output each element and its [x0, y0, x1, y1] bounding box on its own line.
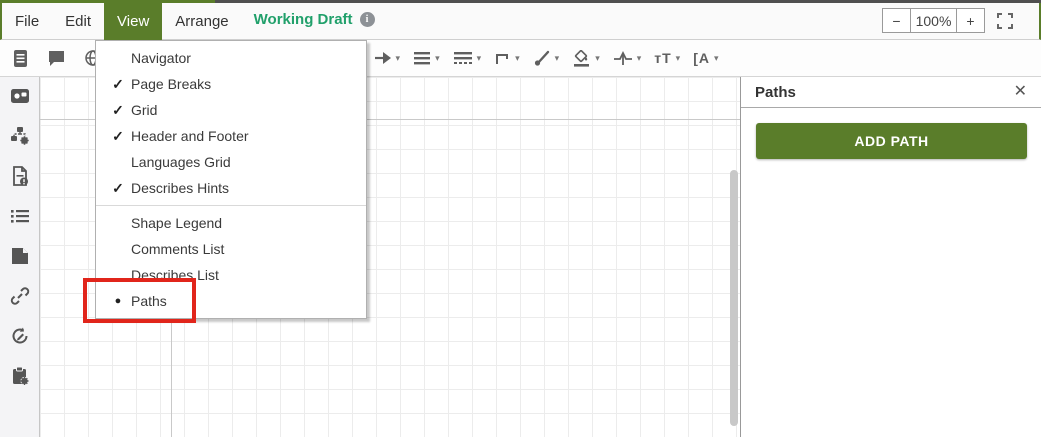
- menu-item-header-and-footer[interactable]: ✓ Header and Footer: [96, 123, 366, 149]
- text-size-glyph: тT: [654, 50, 671, 66]
- elbow-connector-icon[interactable]: ▾: [494, 50, 520, 66]
- menu-item-navigator[interactable]: Navigator: [96, 45, 366, 71]
- list-icon[interactable]: [10, 206, 30, 226]
- canvas-vertical-scrollbar[interactable]: [730, 170, 738, 426]
- arrow-connector-icon[interactable]: ▾: [374, 50, 401, 66]
- zoom-controls: − 100% +: [882, 8, 1014, 33]
- menu-arrange[interactable]: Arrange: [162, 3, 241, 40]
- caret-icon: ▾: [637, 53, 642, 64]
- caret-icon: ▾: [555, 53, 560, 64]
- caret-icon: ▾: [676, 53, 681, 64]
- close-icon[interactable]: ✕: [1014, 84, 1027, 100]
- menu-edit[interactable]: Edit: [52, 3, 104, 40]
- line-style-icon[interactable]: ▾: [413, 50, 440, 66]
- caret-icon: ▾: [477, 53, 482, 64]
- font-glyph: [A: [693, 50, 710, 66]
- menubar: File Edit View Arrange Working Draft i −…: [0, 0, 1041, 40]
- check-mark: ✓: [106, 76, 130, 93]
- waypoint-icon[interactable]: ▾: [613, 50, 642, 66]
- caret-icon: ▾: [714, 53, 719, 64]
- menu-item-label: Grid: [131, 102, 157, 118]
- view-dropdown-menu: Navigator ✓ Page Breaks ✓ Grid ✓ Header …: [95, 40, 367, 319]
- check-mark: ✓: [106, 180, 130, 197]
- document-icon[interactable]: [12, 49, 29, 68]
- document-info-icon[interactable]: [10, 166, 30, 186]
- menu-item-label: Languages Grid: [131, 154, 231, 170]
- font-icon[interactable]: [A ▾: [693, 50, 718, 66]
- comment-icon[interactable]: [47, 49, 66, 67]
- menu-item-page-breaks[interactable]: ✓ Page Breaks: [96, 71, 366, 97]
- brush-icon[interactable]: ▾: [533, 50, 560, 66]
- caret-icon: ▾: [515, 53, 520, 64]
- clipboard-settings-icon[interactable]: [10, 366, 30, 386]
- left-sidebar: [0, 77, 40, 437]
- menu-item-label: Shape Legend: [131, 215, 222, 231]
- menu-item-describes-hints[interactable]: ✓ Describes Hints: [96, 175, 366, 201]
- menu-item-label: Paths: [131, 293, 167, 309]
- menu-item-label: Comments List: [131, 241, 224, 257]
- flow-settings-icon[interactable]: [10, 126, 30, 146]
- menu-item-comments-list[interactable]: Comments List: [96, 236, 366, 262]
- panel-title: Paths: [755, 84, 796, 101]
- menu-item-paths[interactable]: ● Paths: [96, 288, 366, 314]
- zoom-level: 100%: [911, 8, 956, 33]
- fullscreen-icon[interactable]: [996, 12, 1014, 30]
- menu-item-label: Describes List: [131, 267, 219, 283]
- menu-item-describes-list[interactable]: Describes List: [96, 262, 366, 288]
- history-edit-icon[interactable]: [10, 326, 30, 346]
- zoom-in-button[interactable]: +: [956, 8, 985, 33]
- caret-icon: ▾: [595, 53, 600, 64]
- media-icon[interactable]: [10, 86, 30, 106]
- menu-item-label: Page Breaks: [131, 76, 211, 92]
- check-mark: ✓: [106, 128, 130, 145]
- check-mark: ✓: [106, 102, 130, 119]
- menu-item-label: Describes Hints: [131, 180, 229, 196]
- paths-panel: Paths ✕ ADD PATH: [740, 77, 1041, 437]
- zoom-out-button[interactable]: −: [882, 8, 911, 33]
- menu-file[interactable]: File: [2, 3, 52, 40]
- bullet-mark: ●: [106, 295, 130, 307]
- menu-divider: [96, 205, 366, 206]
- link-icon[interactable]: [10, 286, 30, 306]
- menu-item-grid[interactable]: ✓ Grid: [96, 97, 366, 123]
- note-icon[interactable]: [10, 246, 30, 266]
- fill-color-icon[interactable]: ▾: [572, 50, 600, 67]
- menu-item-label: Header and Footer: [131, 128, 249, 144]
- add-path-button[interactable]: ADD PATH: [756, 123, 1027, 159]
- menu-item-languages-grid[interactable]: Languages Grid: [96, 149, 366, 175]
- line-dash-icon[interactable]: ▾: [453, 50, 482, 66]
- info-icon[interactable]: i: [360, 12, 375, 27]
- caret-icon: ▾: [396, 53, 401, 64]
- paths-panel-header: Paths ✕: [741, 77, 1041, 108]
- text-size-icon[interactable]: тT ▾: [654, 50, 680, 66]
- menu-view[interactable]: View: [104, 3, 162, 40]
- caret-icon: ▾: [435, 53, 440, 64]
- menu-item-shape-legend[interactable]: Shape Legend: [96, 210, 366, 236]
- menu-item-label: Navigator: [131, 50, 191, 66]
- draft-status-label: Working Draft: [254, 11, 353, 28]
